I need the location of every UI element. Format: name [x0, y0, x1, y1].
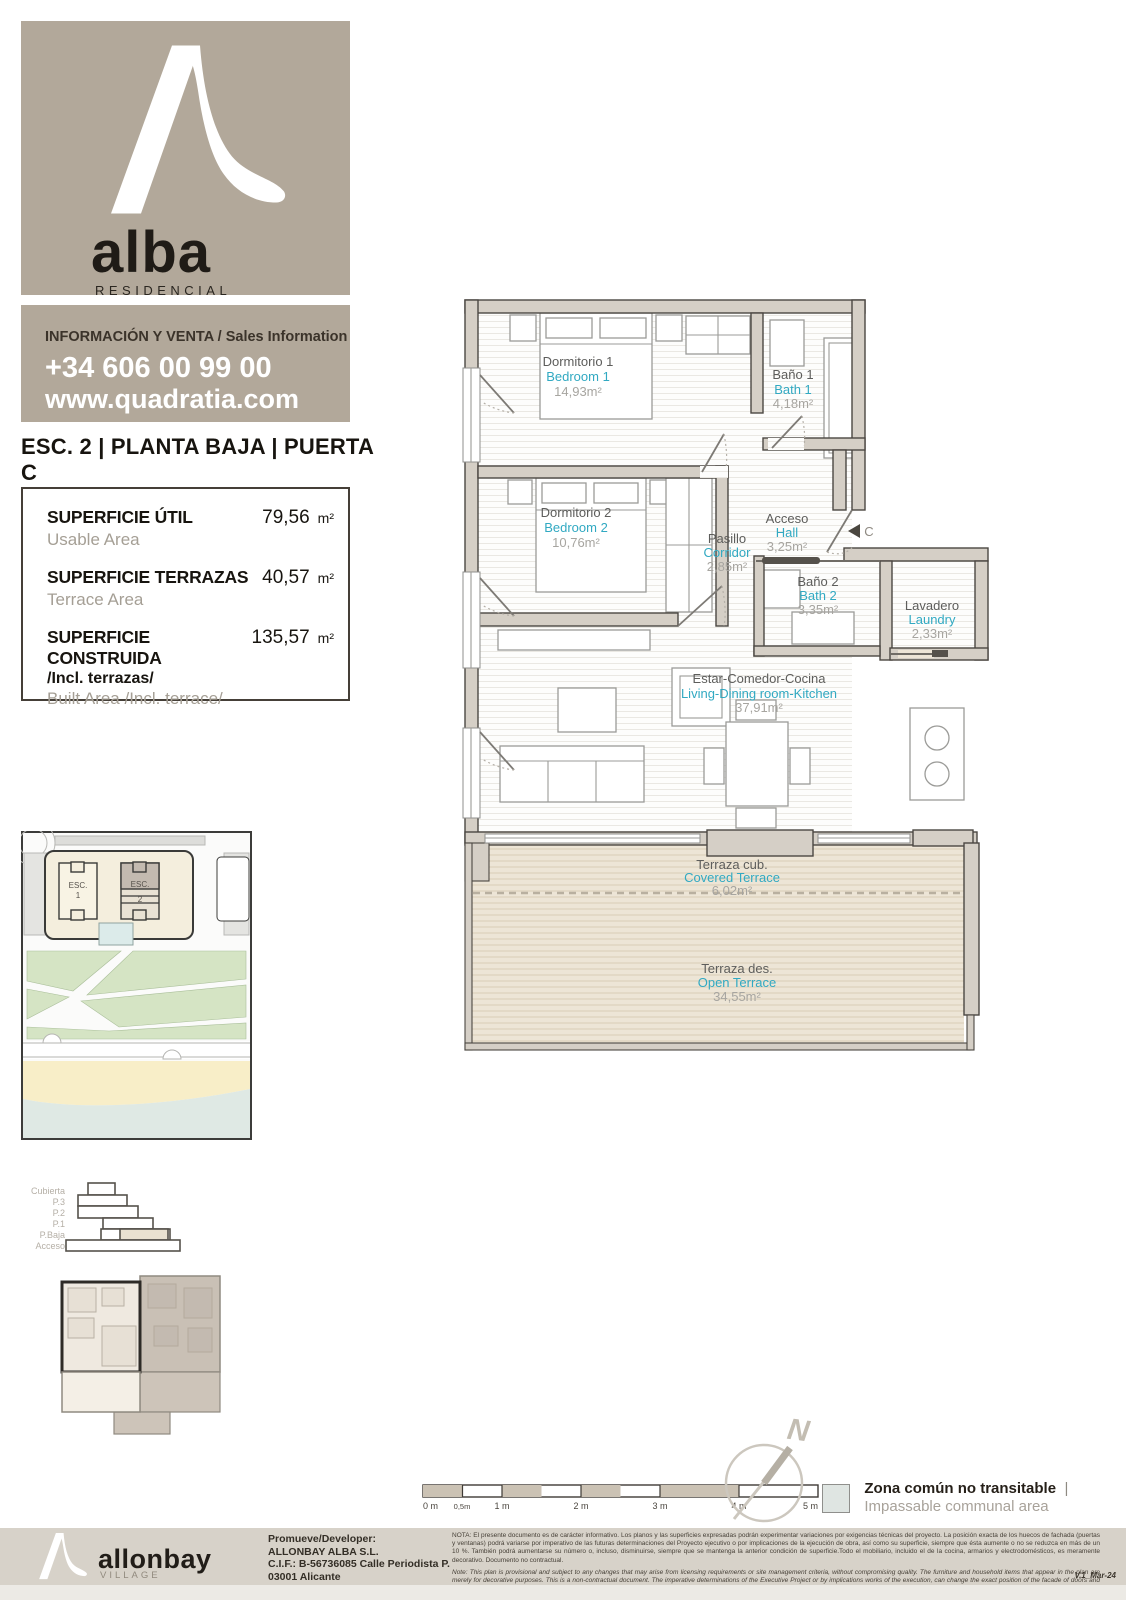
- room-label-en: Bedroom 2: [544, 520, 608, 535]
- room-label-es: Terraza des.: [701, 961, 773, 976]
- level-label: P.1: [53, 1219, 65, 1229]
- allonbay-lambda-logo-icon: [28, 1533, 92, 1581]
- room-label-en: Open Terrace: [698, 975, 777, 990]
- area-label-extra: /Incl. terrazas/: [47, 670, 334, 688]
- esc1-number: 1: [76, 891, 81, 900]
- room-label-area: 2,33m²: [912, 626, 953, 641]
- room-label-es: Baño 1: [772, 367, 813, 382]
- room-label-es: Dormitorio 2: [541, 505, 612, 520]
- brand-name: alba: [91, 224, 211, 282]
- site-map: ESC. 1 ESC. 2: [21, 831, 252, 1140]
- area-value: 40,57: [262, 567, 310, 589]
- room-label-es: Acceso: [766, 511, 809, 526]
- legend-separator: |: [1065, 1480, 1069, 1497]
- brand-block: alba RESIDENCIAL: [21, 21, 350, 295]
- surface-areas-box: SUPERFICIE ÚTIL 79,56 m² Usable Area SUP…: [21, 487, 350, 701]
- level-label: P.3: [53, 1197, 65, 1207]
- developer-line: ALLONBAY ALBA S.L.: [268, 1546, 450, 1559]
- key-plan-subject-unit: [62, 1282, 140, 1412]
- room-label-area: 3,35m²: [798, 602, 839, 617]
- brand-tagline: RESIDENCIAL: [95, 283, 231, 298]
- legend-label-es: Zona común no transitable: [864, 1480, 1056, 1497]
- room-label-es: Lavadero: [905, 598, 959, 613]
- sales-info-label: INFORMACIÓN Y VENTA / Sales Information: [45, 329, 350, 345]
- area-unit: m²: [318, 570, 334, 586]
- room-label-en: Bedroom 1: [546, 369, 610, 384]
- site-map-building-esc1: ESC. 1: [59, 862, 97, 920]
- room-label-es: Pasillo: [708, 531, 746, 546]
- developer-line: C.I.F.: B-56736085 Calle Periodista P.: [268, 1558, 450, 1571]
- room-label-area: 3,25m²: [767, 539, 808, 554]
- site-map-pool: [99, 923, 133, 945]
- developer-info: Promueve/Developer: ALLONBAY ALBA S.L. C…: [268, 1533, 450, 1583]
- area-label-en: Built Area /Incl. terrace/: [47, 689, 334, 709]
- room-label-es: Dormitorio 1: [543, 354, 614, 369]
- area-row-terrace: SUPERFICIE TERRAZAS 40,57 m² Terrace Are…: [47, 567, 334, 610]
- esc2-label: ESC.: [131, 880, 150, 889]
- esc2-number: 2: [138, 895, 143, 904]
- disclaimer-note-es: NOTA: El presente documento es de caráct…: [452, 1532, 1100, 1564]
- floor-plan: Dormitorio 1 Bedroom 1 14,93m² Baño 1 Ba…: [440, 280, 1000, 1070]
- room-label-en: Corridor: [704, 545, 752, 560]
- sales-phone: +34 606 00 99 00: [45, 353, 350, 383]
- developer-line: 03001 Alicante: [268, 1571, 450, 1584]
- level-label: Cubierta: [31, 1186, 65, 1196]
- plan-version: V.1_Mar-24: [1074, 1571, 1116, 1580]
- area-row-built: SUPERFICIE CONSTRUIDA 135,57 m² /Incl. t…: [47, 627, 334, 709]
- area-value: 135,57: [252, 627, 310, 649]
- room-label-area: 14,93m²: [554, 384, 602, 399]
- area-row-usable: SUPERFICIE ÚTIL 79,56 m² Usable Area: [47, 507, 334, 550]
- room-label-area: 4,18m²: [773, 396, 814, 411]
- scale-label: 3 m: [652, 1501, 667, 1511]
- room-label-area: 10,76m²: [552, 535, 600, 550]
- scale-label: 0 m: [423, 1501, 438, 1511]
- section-level-shapes: [66, 1183, 180, 1251]
- area-label-en: Usable Area: [47, 530, 334, 550]
- compass-north-label: N: [785, 1413, 812, 1449]
- room-label-area: 37,91m²: [735, 700, 783, 715]
- area-value: 79,56: [262, 507, 310, 529]
- key-plan: [50, 1268, 230, 1438]
- unit-title-es: ESC. 2 | PLANTA BAJA | PUERTA C: [21, 434, 381, 486]
- area-label-en: Terrace Area: [47, 590, 334, 610]
- sales-website: www.quadratia.com: [45, 383, 350, 415]
- sales-info-block: INFORMACIÓN Y VENTA / Sales Information …: [21, 305, 350, 422]
- section-level-labels: Cubierta P.3 P.2 P.1 P.Baja Acceso: [31, 1186, 65, 1251]
- alba-lambda-logo-icon: [87, 43, 287, 223]
- door-marker-letter: C: [864, 524, 873, 539]
- area-label: SUPERFICIE CONSTRUIDA: [47, 627, 252, 669]
- flyer-page: alba RESIDENCIAL INFORMACIÓN Y VENTA / S…: [0, 0, 1126, 1600]
- compass-icon: N: [712, 1398, 827, 1528]
- scale-label: 0,5m: [454, 1502, 471, 1511]
- room-label-es: Estar-Comedor-Cocina: [693, 671, 827, 686]
- area-label: SUPERFICIE TERRAZAS: [47, 567, 262, 588]
- room-label-en: Bath 2: [799, 588, 837, 603]
- esc1-label: ESC.: [69, 881, 88, 890]
- level-label: P.2: [53, 1208, 65, 1218]
- footer-brand-sub: VILLAGE: [100, 1570, 161, 1581]
- room-label-en: Bath 1: [774, 382, 812, 397]
- level-label: P.Baja: [40, 1230, 65, 1240]
- scale-label: 1 m: [494, 1501, 509, 1511]
- site-map-building-esc2: ESC. 2: [121, 862, 159, 920]
- footer-bottom-strip: [0, 1585, 1126, 1600]
- footer: allonbay VILLAGE Promueve/Developer: ALL…: [0, 1528, 1126, 1585]
- room-label-area: 2,85m²: [707, 559, 748, 574]
- legend-label-en: Impassable communal area: [864, 1498, 1048, 1515]
- room-label-en: Hall: [776, 525, 799, 540]
- legend: Zona común no transitable | Impassable c…: [822, 1480, 1126, 1516]
- site-map-plot: ESC. 1 ESC. 2: [45, 851, 193, 945]
- area-unit: m²: [318, 630, 334, 646]
- room-label-en: Laundry: [909, 612, 956, 627]
- area-label: SUPERFICIE ÚTIL: [47, 507, 262, 528]
- developer-line: Promueve/Developer:: [268, 1533, 450, 1546]
- room-label-en: Living-Dining room-Kitchen: [681, 686, 837, 701]
- room-label-es: Baño 2: [797, 574, 838, 589]
- legend-swatch: [822, 1484, 850, 1513]
- area-unit: m²: [318, 510, 334, 526]
- room-label-area: 6,02m²: [712, 883, 753, 898]
- building-section-diagram: Cubierta P.3 P.2 P.1 P.Baja Acceso: [10, 1165, 220, 1275]
- level-label: Acceso: [35, 1241, 65, 1251]
- room-label-area: 34,55m²: [713, 989, 761, 1004]
- scale-label: 2 m: [573, 1501, 588, 1511]
